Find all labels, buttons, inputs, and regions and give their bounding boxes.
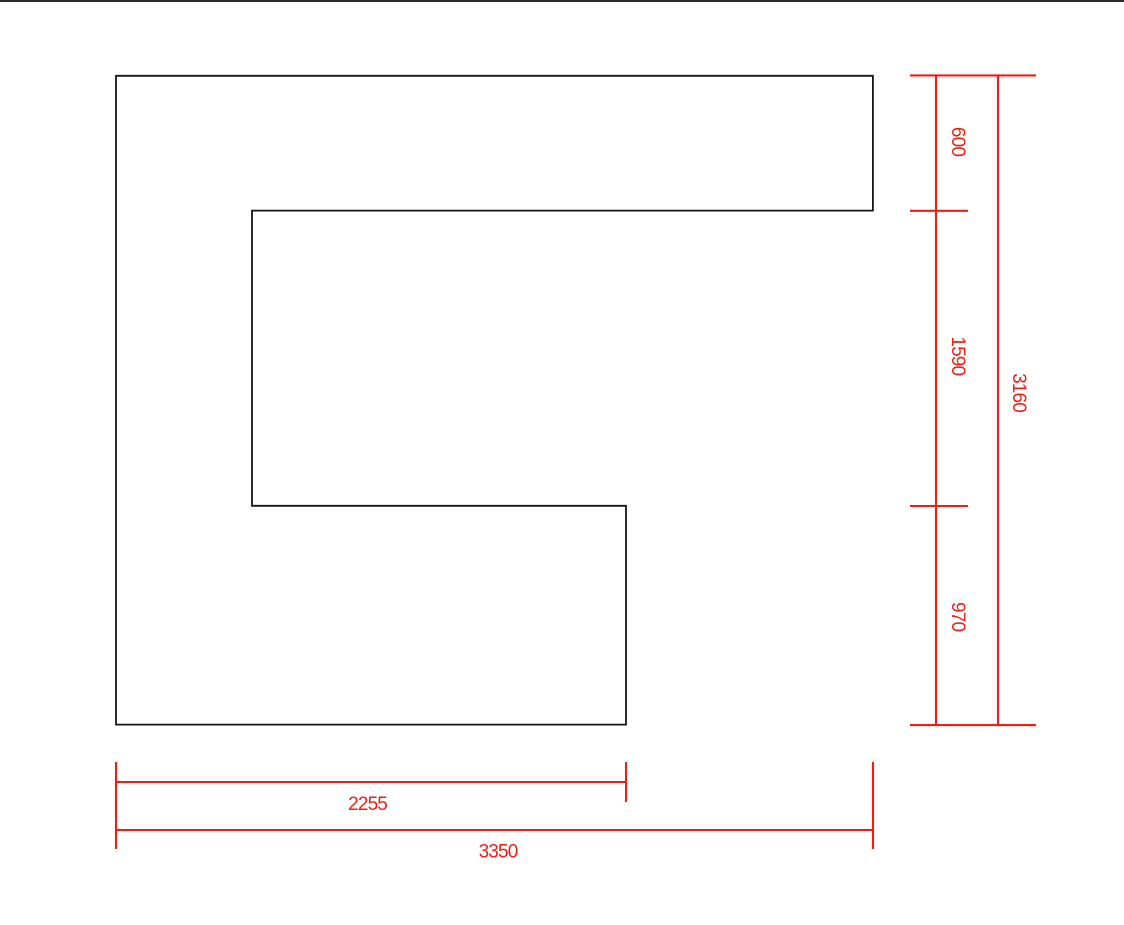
svg-text:3160: 3160 [1008,373,1029,412]
svg-text:600: 600 [947,127,968,156]
svg-text:970: 970 [947,602,968,631]
svg-text:3350: 3350 [479,842,518,863]
svg-text:2255: 2255 [348,794,387,815]
svg-text:1590: 1590 [947,336,968,375]
